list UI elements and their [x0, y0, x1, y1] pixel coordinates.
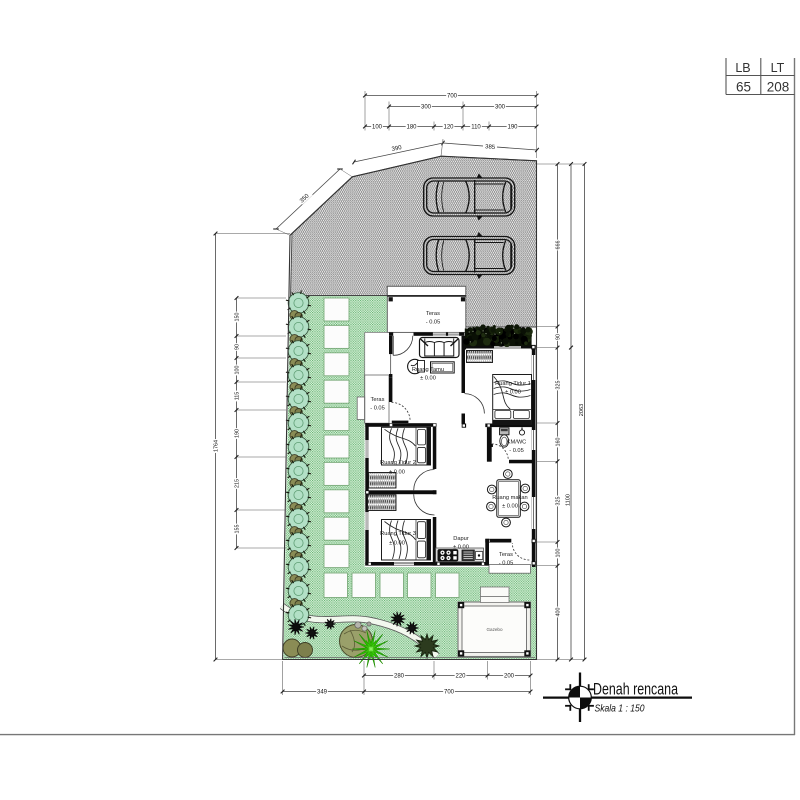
- svg-text:- 0.05: - 0.05: [499, 561, 514, 567]
- svg-text:Ruang makan: Ruang makan: [492, 495, 527, 501]
- svg-text:120: 120: [443, 125, 454, 131]
- svg-text:190: 190: [507, 125, 518, 131]
- svg-text:349: 349: [317, 690, 328, 696]
- svg-text:100: 100: [234, 366, 240, 375]
- svg-text:385: 385: [485, 144, 496, 151]
- svg-text:- 0.05: - 0.05: [426, 320, 441, 326]
- svg-text:Skala 1 : 150: Skala 1 : 150: [595, 703, 645, 715]
- svg-text:160: 160: [555, 438, 561, 447]
- svg-text:700: 700: [444, 690, 455, 696]
- svg-text:700: 700: [447, 94, 458, 100]
- svg-text:115: 115: [234, 392, 240, 401]
- svg-text:300: 300: [421, 105, 432, 111]
- svg-text:100: 100: [372, 125, 383, 131]
- svg-text:215: 215: [234, 479, 240, 488]
- svg-text:666: 666: [555, 241, 561, 250]
- svg-text:280: 280: [394, 674, 405, 680]
- svg-text:190: 190: [234, 429, 240, 438]
- svg-text:325: 325: [555, 497, 561, 506]
- svg-text:1764: 1764: [213, 440, 219, 452]
- svg-text:300: 300: [495, 105, 506, 111]
- svg-text:- 0.05: - 0.05: [370, 406, 385, 412]
- svg-text:400: 400: [555, 608, 561, 617]
- svg-text:Gazebo: Gazebo: [486, 627, 503, 632]
- svg-text:Dapur: Dapur: [453, 536, 469, 542]
- svg-text:± 0.00: ± 0.00: [502, 504, 518, 510]
- svg-text:Teras: Teras: [371, 397, 385, 403]
- svg-text:Denah rencana: Denah rencana: [593, 681, 679, 699]
- svg-text:110: 110: [471, 125, 481, 131]
- svg-text:Ruang Tidur 2: Ruang Tidur 2: [380, 460, 416, 466]
- svg-text:Teras: Teras: [499, 552, 513, 558]
- svg-text:2063: 2063: [579, 404, 585, 416]
- svg-text:LT: LT: [771, 61, 785, 75]
- svg-text:1100: 1100: [566, 494, 572, 506]
- svg-text:155: 155: [234, 525, 240, 534]
- svg-text:± 0.00: ± 0.00: [420, 376, 436, 382]
- svg-text:± 0.00: ± 0.00: [389, 470, 405, 476]
- svg-text:Ruang Tidur 1: Ruang Tidur 1: [495, 381, 531, 387]
- svg-text:± 0.00: ± 0.00: [453, 545, 469, 551]
- svg-text:Ruang Tidur 3: Ruang Tidur 3: [380, 531, 416, 537]
- svg-text:65: 65: [736, 80, 751, 95]
- svg-text:90: 90: [555, 334, 561, 340]
- svg-text:150: 150: [234, 313, 240, 322]
- svg-text:± 0.00: ± 0.00: [505, 390, 521, 396]
- svg-text:220: 220: [455, 674, 466, 680]
- svg-text:Teras: Teras: [426, 311, 440, 317]
- svg-text:208: 208: [767, 80, 790, 95]
- svg-text:180: 180: [406, 125, 417, 131]
- svg-text:90: 90: [234, 344, 240, 350]
- svg-text:± 0.00: ± 0.00: [389, 541, 405, 547]
- svg-text:KM/WC: KM/WC: [507, 440, 527, 446]
- svg-text:325: 325: [555, 381, 561, 390]
- svg-text:- 0.05: - 0.05: [509, 448, 524, 454]
- svg-text:100: 100: [555, 549, 561, 558]
- svg-text:Ruang Tamu: Ruang Tamu: [412, 367, 444, 373]
- svg-text:LB: LB: [735, 61, 750, 75]
- svg-text:200: 200: [504, 674, 515, 680]
